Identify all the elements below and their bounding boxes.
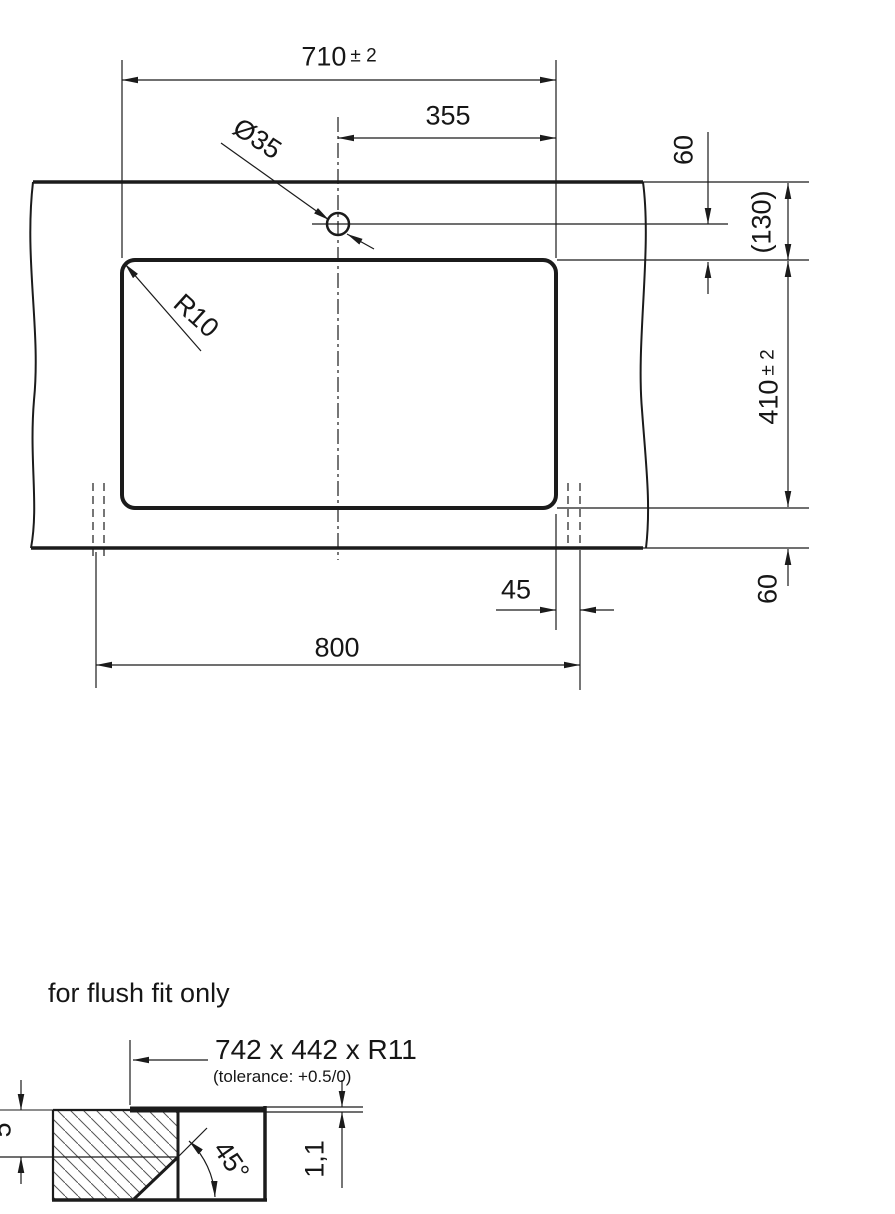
dim-label-recess-size: 742 x 442 x R11 [215, 1036, 417, 1064]
flush-fit-note: for flush fit only [48, 980, 230, 1007]
dim-label-recess-depth: 5 [0, 1122, 16, 1137]
dim-label-center-offset: 355 [425, 103, 470, 130]
cutout-width-value: 710 [301, 44, 346, 71]
installation-drawing: 710 ± 2 355 Ø35 R10 60 (130) 410 ± 2 60 … [0, 0, 895, 1214]
break-line-right [641, 182, 648, 548]
dim-label-hole-offset: 60 [671, 135, 698, 165]
leader-hole-diameter-far [347, 234, 374, 249]
dim-label-cutout-depth: 410 ± 2 [756, 349, 783, 424]
cutout-depth-value: 410 [756, 380, 783, 425]
dim-label-rear-clearance: 60 [755, 574, 782, 604]
cutout-depth-tolerance: ± 2 [759, 349, 778, 375]
dim-label-front-overall: (130) [749, 190, 776, 253]
chamfer-extension-line [178, 1128, 207, 1157]
break-line-left [30, 182, 35, 548]
dim-label-cutout-width: 710 ± 2 [301, 44, 376, 71]
dim-label-min-width: 800 [314, 635, 359, 662]
drawing-canvas [0, 0, 895, 1214]
dim-label-proud-height: 1,1 [302, 1140, 329, 1178]
dim-label-side-clearance: 45 [501, 577, 531, 604]
cutout-width-tolerance: ± 2 [350, 47, 376, 66]
worktop-section-hatch [53, 1110, 178, 1200]
recess-tolerance-note: (tolerance: +0.5/0) [213, 1068, 351, 1085]
